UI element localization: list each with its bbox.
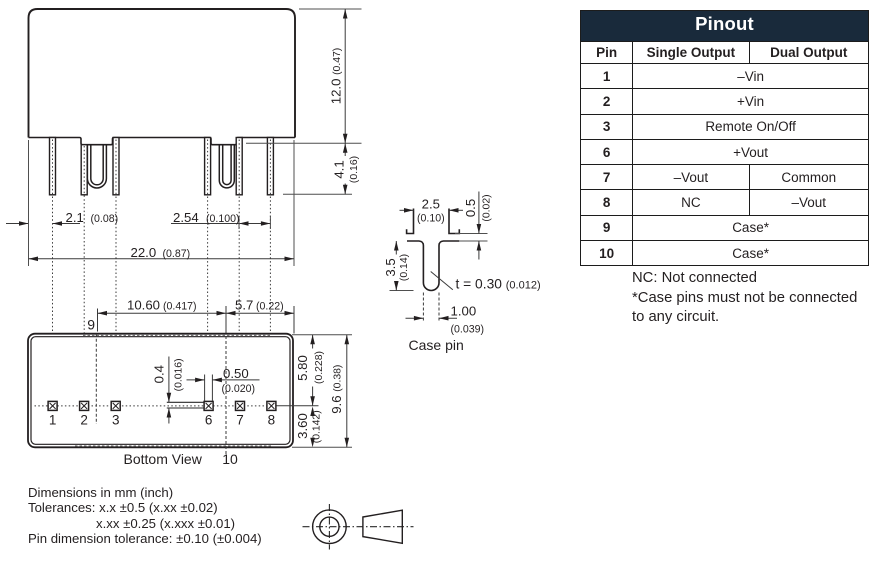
svg-text:(0.14): (0.14) (399, 254, 410, 281)
svg-text:3.5: 3.5 (383, 258, 398, 276)
svg-text:4.1: 4.1 (332, 160, 347, 178)
svg-text:1: 1 (49, 413, 57, 428)
svg-text:3: 3 (112, 413, 120, 428)
svg-text:(0.87): (0.87) (163, 248, 191, 260)
svg-text:2: 2 (80, 413, 88, 428)
svg-text:0.4: 0.4 (151, 365, 166, 383)
svg-text:9.6 (0.38): 9.6 (0.38) (329, 365, 344, 414)
svg-text:(0.02): (0.02) (481, 194, 492, 221)
svg-text:10: 10 (222, 451, 238, 467)
svg-text:6: 6 (205, 413, 213, 428)
svg-text:2.54: 2.54 (173, 210, 199, 225)
svg-text:3.60: 3.60 (295, 413, 310, 439)
svg-text:(0.020): (0.020) (222, 383, 256, 395)
svg-text:22.0: 22.0 (131, 245, 157, 260)
svg-text:(0.10): (0.10) (417, 213, 445, 225)
svg-text:5.80: 5.80 (295, 355, 310, 381)
svg-text:(0.08): (0.08) (91, 213, 119, 225)
svg-text:(0.039): (0.039) (451, 324, 485, 336)
svg-text:(0.22): (0.22) (256, 300, 284, 312)
svg-text:0.5: 0.5 (463, 199, 478, 217)
svg-text:2.5: 2.5 (422, 196, 440, 211)
svg-text:(0.100): (0.100) (206, 213, 240, 225)
svg-text:(0.142): (0.142) (312, 410, 323, 443)
svg-text:Case pin: Case pin (409, 337, 464, 353)
svg-text:1.00: 1.00 (451, 304, 477, 319)
svg-text:(0.016): (0.016) (173, 358, 184, 391)
svg-text:12.0 (0.47): 12.0 (0.47) (328, 48, 343, 105)
svg-text:t = 0.30 (0.012): t = 0.30 (0.012) (456, 276, 541, 291)
svg-text:5.7: 5.7 (235, 297, 253, 312)
svg-text:7: 7 (236, 413, 244, 428)
svg-text:(0.228): (0.228) (314, 351, 325, 384)
svg-text:Bottom View: Bottom View (124, 451, 203, 467)
svg-text:10.60: 10.60 (127, 297, 160, 312)
svg-text:9: 9 (87, 317, 95, 333)
svg-text:8: 8 (268, 413, 276, 428)
svg-text:(0.16): (0.16) (349, 156, 360, 183)
svg-text:(0.417): (0.417) (163, 300, 197, 312)
svg-text:2.1: 2.1 (66, 210, 84, 225)
svg-text:0.50: 0.50 (223, 366, 249, 381)
